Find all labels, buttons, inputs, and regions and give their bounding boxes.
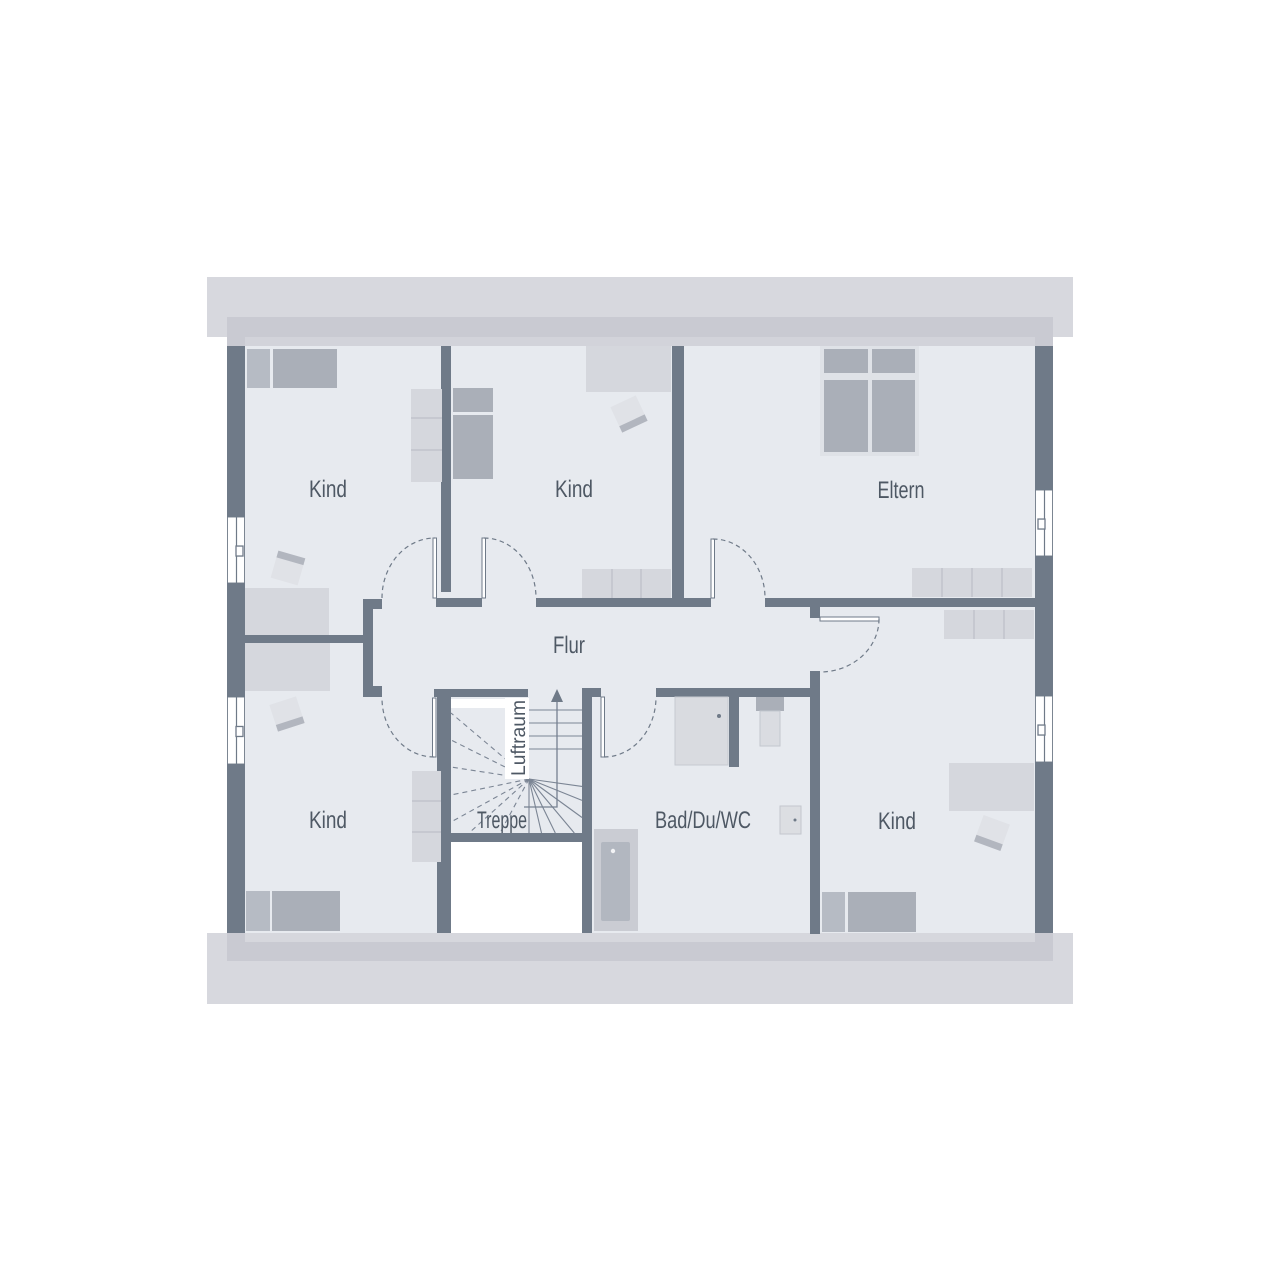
svg-text:Luftraum: Luftraum xyxy=(508,700,530,776)
svg-text:Treppe: Treppe xyxy=(477,807,527,834)
svg-text:Kind: Kind xyxy=(555,476,593,503)
svg-text:Eltern: Eltern xyxy=(878,477,925,504)
svg-text:Kind: Kind xyxy=(309,807,347,834)
svg-text:Bad/Du/WC: Bad/Du/WC xyxy=(655,807,751,834)
svg-text:Kind: Kind xyxy=(878,808,916,835)
svg-text:Flur: Flur xyxy=(553,632,585,659)
svg-text:Kind: Kind xyxy=(309,476,347,503)
